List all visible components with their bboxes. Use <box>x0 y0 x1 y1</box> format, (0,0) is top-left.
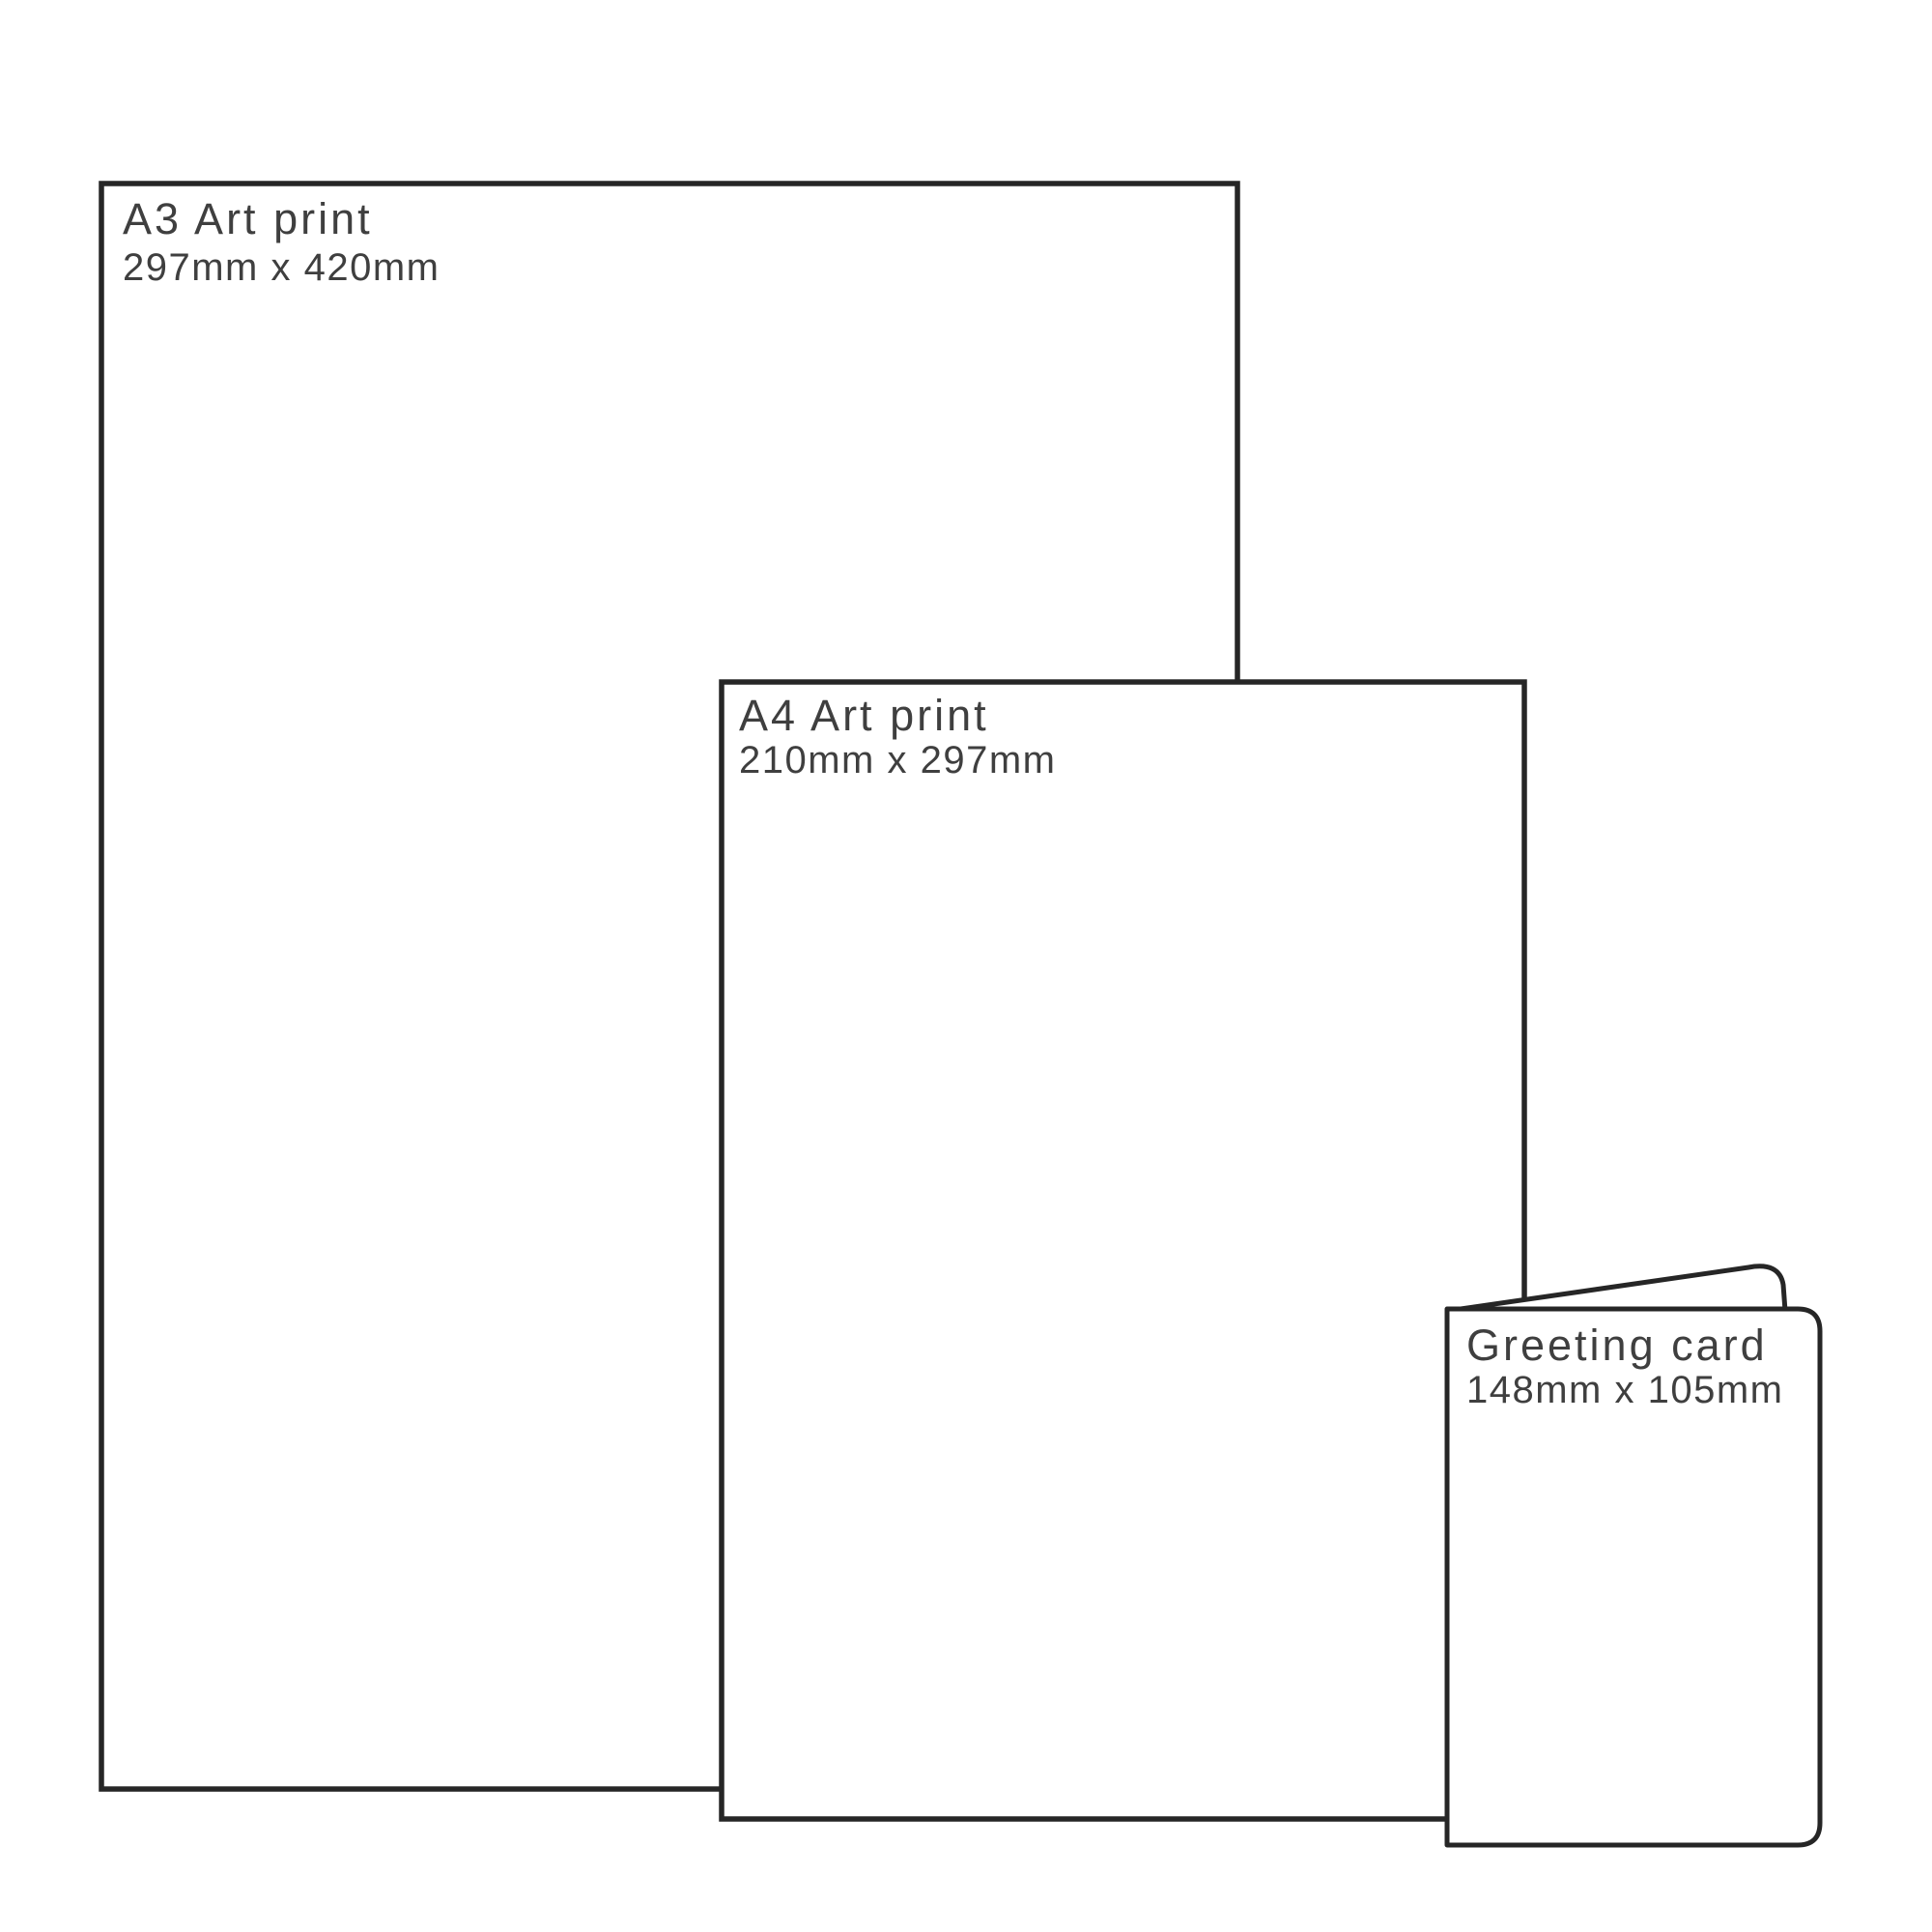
a4-sheet-outline <box>722 682 1524 1819</box>
size-comparison-diagram: A3 Art print 297mm x 420mm A4 Art print … <box>0 0 1932 1932</box>
a3-title: A3 Art print <box>123 194 373 243</box>
greeting-card-dimensions: 148mm x 105mm <box>1466 1369 1783 1411</box>
diagram-svg: A3 Art print 297mm x 420mm A4 Art print … <box>0 0 1932 1932</box>
greeting-card-title: Greeting card <box>1466 1321 1768 1370</box>
a3-dimensions: 297mm x 420mm <box>123 246 440 289</box>
a4-title: A4 Art print <box>739 691 989 740</box>
a4-dimensions: 210mm x 297mm <box>739 739 1056 781</box>
